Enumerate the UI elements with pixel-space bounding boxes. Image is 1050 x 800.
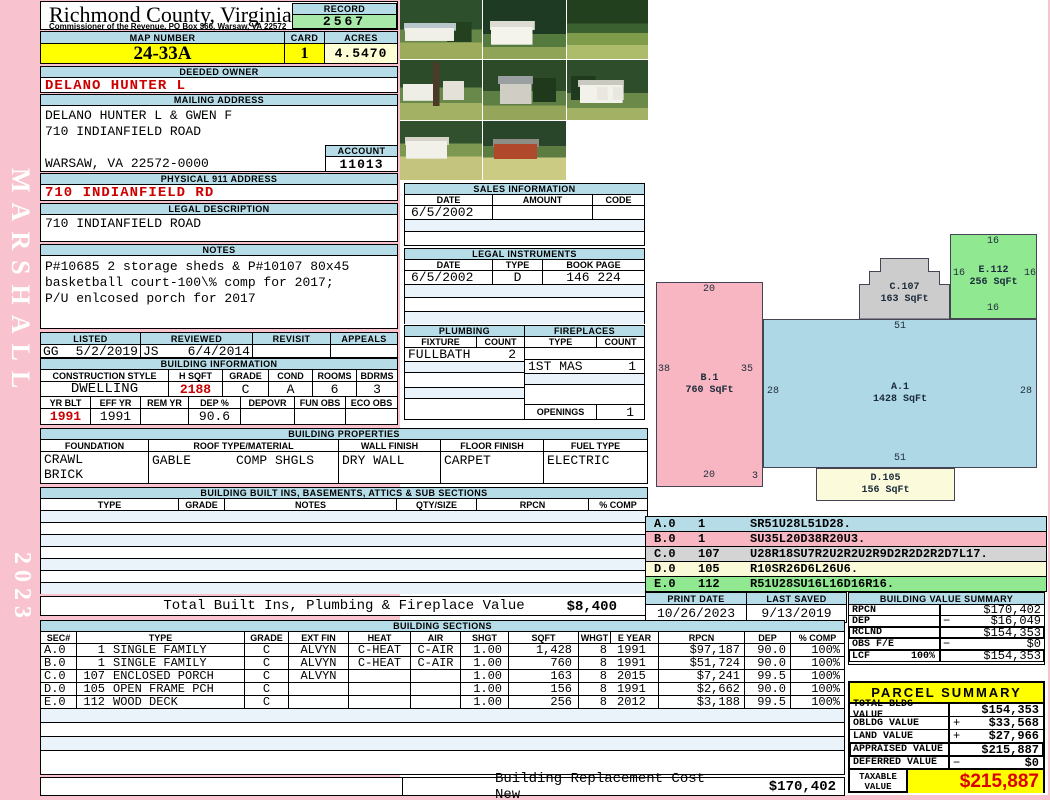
bdrms-value: 3 [357,382,397,396]
sec-num: 112 [77,696,105,708]
bi-comp-label: % COMP [589,499,647,511]
empty-row [525,374,644,385]
listed-date: 5/2/2019 [76,345,138,357]
sec-comp: 100% [791,670,844,682]
sec-whgt: 8 [579,644,611,656]
sec-id: B.0 [41,657,77,669]
legend-trace: SR51U28L51D28. [750,517,851,531]
fireplace-type-value: 1ST MAS [525,360,597,373]
reviewed-by: JS [143,345,159,357]
section-row: A.0 1 SINGLE FAMILY C ALVYN C-HEAT C-AIR… [41,644,844,657]
ps-sign: + [950,717,965,729]
sec-comp: 100% [791,683,844,695]
dep-pct-value: 90.6 [189,409,241,424]
sketch-section-sqft: 256 SqFt [969,277,1017,289]
sketch-section-b1: B.1 760 SqFt [656,282,763,487]
ps-sign: − [950,757,965,768]
legend-num: 105 [698,562,750,576]
photo-garage-in-field[interactable] [400,121,482,180]
legend-sec: B.0 [646,532,698,546]
remyr-value [141,409,189,424]
empty-row [405,298,644,312]
sec-eyear: 2015 [611,670,659,682]
tax-year-watermark: 2023 [8,552,35,624]
legend-num: 1 [698,517,750,531]
hsqft-label: H SQFT [169,370,223,382]
sec-rpcn: $2,662 [659,683,745,695]
grade-label: GRADE [223,370,269,382]
instr-type-label: TYPE [493,260,543,271]
sec-dep: 90.0 [745,644,791,656]
sales-code-value [593,206,644,219]
taxable-label-line: TAXABLE [859,772,897,782]
mailing-address-box: MAILING ADDRESS DELANO HUNTER L & GWEN F… [40,94,398,172]
col-heat: HEAT [349,632,411,644]
review-table: LISTED REVIEWED REVISIT APPEALS GG 5/2/2… [40,332,398,358]
sec-type: OPEN FRAME PCH [105,683,245,695]
print-date-panel: PRINT DATE 10/26/2023 [646,593,747,622]
sketch-section-sqft: 1428 SqFt [873,394,927,406]
section-row: C.0 107 ENCLOSED PORCH C ALVYN 1.00 163 … [41,670,844,683]
effyr-value: 1991 [91,409,141,424]
sec-id: D.0 [41,683,77,695]
notes-line: basketball court-100\% comp for 2017; [45,275,397,291]
building-properties-title: BUILDING PROPERTIES [41,429,647,440]
sketch-section-name: C.107 [859,282,950,294]
sec-extfin: ALVYN [289,644,349,656]
listed-label: LISTED [41,333,141,345]
empty-row [405,285,644,298]
photo-empty-slot [567,121,649,180]
legend-trace: U28R18SU7R2U2R2U2R9D2R2D2R2D7L17. [750,547,988,561]
property-record-card: MARSHALL 2023 Richmond County, Virginia … [0,0,1050,800]
grade-value: C [223,382,269,396]
roof-material-value: COMP SHGLS [236,453,314,468]
sec-id: E.0 [41,696,77,708]
col-type: TYPE [77,632,245,644]
legend-row: E.0 112 R51U28SU16L16D16R16. [646,577,1046,592]
sec-whgt: 8 [579,683,611,695]
depovr-value [241,409,295,424]
mailing-line: DELANO HUNTER L & GWEN F [45,108,397,124]
col-shgt: SHGT [461,632,509,644]
vs-label: OBS F/E [849,639,941,649]
empty-row [405,220,644,232]
sec-sqft: 163 [509,670,579,682]
empty-row [405,232,644,243]
legend-row: C.0 107 U28R18SU7R2U2R2U2R9D2R2D2R2D7L17… [646,547,1046,562]
col-sqft: SQFT [509,632,579,644]
sketch-section-name: D.105 [870,473,900,485]
sec-sqft: 156 [509,683,579,695]
ps-label: DEFERRED VALUE [850,757,950,768]
sec-rpcn: $97,187 [659,644,745,656]
ps-label: LAND VALUE [850,730,950,742]
col-whgt: WHGT [579,632,611,644]
sec-eyear: 1991 [611,644,659,656]
legend-sec: A.0 [646,517,698,531]
effyr-label: EFF YR [91,397,141,409]
mailing-address-label: MAILING ADDRESS [41,95,397,106]
taxable-row: TAXABLE VALUE $215,887 [850,770,1043,793]
col-grade: GRADE [245,632,289,644]
vs-value: $0 [955,639,1044,649]
fireplace-count-value [597,348,644,359]
sec-comp: 100% [791,644,844,656]
sec-type: SINGLE FAMILY [105,657,245,669]
sec-heat [349,670,411,682]
empty-row [405,373,524,388]
sketch-section-name: B.1 [700,373,718,385]
vs-sign: − [941,639,955,649]
empty-row [41,523,647,535]
empty-row [41,751,844,771]
dim-a1-bottom: 51 [894,453,906,464]
fixture-count-value: 2 [477,348,524,361]
footer-rcn-box: Building Replacement Cost New $170,402 [40,777,845,796]
section-row: B.0 1 SINGLE FAMILY C ALVYN C-HEAT C-AIR… [41,657,844,670]
empty-row [41,737,844,751]
cond-value: A [269,382,313,396]
vendor-watermark: MARSHALL [5,168,35,398]
parcel-row: DEFERRED VALUE − $0 [850,757,1043,770]
sketch-section-sqft: 163 SqFt [859,294,950,306]
acres-value: 4.5470 [325,44,397,63]
legal-description-value: 710 INDIANFIELD ROAD [41,215,397,232]
sec-whgt: 8 [579,657,611,669]
wall-finish-value: DRY WALL [339,452,441,483]
built-ins-title: BUILDING BUILT INS, BASEMENTS, ATTICS & … [41,488,647,499]
sec-eyear: 1991 [611,657,659,669]
rooms-label: ROOMS [313,370,357,382]
remyr-label: REM YR [141,397,189,409]
fixture-value: FULLBATH [405,348,477,361]
title-box: Richmond County, Virginia Commissioner o… [40,1,398,30]
building-value-summary: BUILDING VALUE SUMMARY RPCN $170,402 DEP… [848,592,1045,665]
sales-amount-value [493,206,593,219]
sec-grade: C [245,683,289,695]
sec-heat: C-HEAT [349,644,411,656]
sec-air: C-AIR [411,644,461,656]
sec-air [411,696,461,708]
dim-b1-bottom: 20 [703,470,715,481]
notes-line: P#10685 2 storage sheds & P#10107 80x45 [45,259,397,275]
foundation-line: BRICK [44,467,83,482]
photo-garage-two-door[interactable] [567,60,649,119]
sales-amount-label: AMOUNT [493,195,593,206]
sec-num: 107 [77,670,105,682]
bi-grade-label: GRADE [179,499,225,511]
sec-shgt: 1.00 [461,696,509,708]
photo-garage-white[interactable] [483,0,565,59]
ps-label: APPRAISED VALUE [850,743,950,756]
photo-house-side-with-tree[interactable] [400,60,482,119]
foundation-label: FOUNDATION [41,440,149,452]
dim-e112-bottom: 16 [987,303,999,314]
yrblt-label: YR BLT [41,397,91,409]
appeals-value [331,345,397,357]
floor-finish-value: CARPET [441,452,544,483]
deeded-owner-box: DEEDED OWNER DELANO HUNTER L [40,66,398,93]
ps-value: $0 [965,757,1043,768]
dim-a1-right: 28 [1020,386,1032,397]
vs-sign [941,650,955,662]
reviewed-date: 6/4/2014 [188,345,250,357]
fixture-count-label: COUNT [477,337,524,348]
vs-value: $16,049 [955,616,1044,626]
empty-row [405,399,524,419]
sketch-section-d105: D.105 156 SqFt [816,468,955,501]
dim-a1-top: 51 [894,321,906,332]
vs-pct: 100% [911,651,935,662]
notes-box: NOTES P#10685 2 storage sheds & P#10107 … [40,244,398,329]
legend-row: B.0 1 SU35L20D38R20U3. [646,532,1046,547]
empty-row [41,511,647,523]
sec-dep: 99.5 [745,670,791,682]
ps-value: $33,568 [965,717,1043,729]
bi-notes-label: NOTES [225,499,397,511]
rcn-label: Building Replacement Cost New [403,778,716,795]
empty-row [41,571,647,583]
ps-value: $154,353 [965,704,1043,716]
dim-b1-top: 20 [703,284,715,295]
sec-comp: 100% [791,657,844,669]
plumbing-fireplaces-box: PLUMBING FIXTURE COUNT FULLBATH 2 FIREPL… [404,325,645,420]
sec-air [411,670,461,682]
sec-eyear: 1991 [611,683,659,695]
building-properties-box: BUILDING PROPERTIES FOUNDATION ROOF TYPE… [40,428,648,484]
sec-whgt: 8 [579,670,611,682]
legend-sec: C.0 [646,547,698,561]
funobs-label: FUN OBS [295,397,346,409]
legend-trace: R10SR26D6L26U6. [750,562,858,576]
instr-date-label: DATE [405,260,493,271]
empty-row [405,312,644,324]
empty-row [41,723,844,737]
dim-e112-left: 16 [953,268,965,279]
photo-shed-red-in-field[interactable] [483,121,565,180]
card-label: CARD [285,32,325,44]
fireplace-count-label: COUNT [597,337,644,348]
sec-rpcn: $7,241 [659,670,745,682]
sec-dep: 99.5 [745,696,791,708]
col-sec: SEC# [41,632,77,644]
section-row: E.0 112 WOOD DECK C 1.00 256 8 2012 $3,1… [41,696,844,709]
photo-grid [400,0,649,180]
empty-row [41,709,844,723]
sec-rpcn: $3,188 [659,696,745,708]
dim-a1-left: 28 [767,386,779,397]
hsqft-value: 2188 [169,382,223,396]
total-built-ins-label: Total Built Ins, Plumbing & Fireplace Va… [41,597,647,615]
cond-label: COND [269,370,313,382]
dep-pct-label: DEP % [189,397,241,409]
plumbing-panel: PLUMBING FIXTURE COUNT FULLBATH 2 [405,326,525,419]
card-value: 1 [285,44,325,63]
deeded-owner-value: DELANO HUNTER L [41,78,397,93]
roof-label: ROOF TYPE/MATERIAL [149,440,339,452]
rcn-value: $170,402 [716,778,844,795]
legend-trace: SU35L20D38R20U3. [750,532,865,546]
fireplace-type-value [525,348,597,359]
vs-value: $154,353 [955,650,1044,662]
sketch-section-name: A.1 [891,382,909,394]
instr-bookpage-value: 146 224 [543,271,644,284]
sec-heat [349,696,411,708]
print-info-box: PRINT DATE 10/26/2023 LAST SAVED 9/13/20… [645,592,847,623]
building-sketch: B.1 760 SqFt A.1 1428 SqFt C.107 163 SqF… [648,0,1048,515]
sketch-section-a1: A.1 1428 SqFt [763,319,1037,468]
notes-label: NOTES [41,245,397,256]
print-date-label: PRINT DATE [646,593,746,605]
revisit-value [253,345,331,357]
bdrms-label: BDRMS [357,370,397,382]
fixture-label: FIXTURE [405,337,477,348]
total-built-ins-row: Total Built Ins, Plumbing & Fireplace Va… [40,596,648,616]
dim-b1-right: 35 [741,364,753,375]
notes-line: P/U enlcosed porch for 2017 [45,291,397,307]
legend-row: D.0 105 R10SR26D6L26U6. [646,562,1046,577]
empty-row [525,385,644,404]
sec-sqft: 1,428 [509,644,579,656]
ps-sign [950,743,965,756]
map-number-value: 24-33A [41,44,285,63]
account-value: 11013 [326,157,397,171]
fireplaces-title: FIREPLACES [525,326,644,337]
vs-label: RPCN [849,605,941,615]
bi-rpcn-label: RPCN [477,499,589,511]
openings-label: OPENINGS [525,405,597,419]
sec-id: C.0 [41,670,77,682]
col-extfin: EXT FIN [289,632,349,644]
ecoobs-label: ECO OBS [346,397,397,409]
sketch-section-c107: C.107 163 SqFt [859,282,950,306]
sec-heat [349,683,411,695]
taxable-label-line: VALUE [864,782,891,792]
account-label: ACCOUNT [326,146,397,157]
record-value: 2567 [293,15,396,28]
sec-num: 1 [77,644,105,656]
empty-row [41,535,647,547]
building-info-title: BUILDING INFORMATION [41,359,397,370]
appeals-label: APPEALS [331,333,397,345]
sec-air: C-AIR [411,657,461,669]
roof-type-value: GABLE [152,453,191,468]
sec-grade: C [245,696,289,708]
funobs-value [295,409,346,424]
foundation-line: CRAWL [44,452,83,467]
physical-address-label: PHYSICAL 911 ADDRESS [41,174,397,185]
ecoobs-value [346,409,397,424]
construction-style-label: CONSTRUCTION STYLE [41,370,169,382]
photo-shed-gray[interactable] [483,60,565,119]
sketch-section-sqft: 156 SqFt [861,485,909,497]
taxable-value: $215,887 [908,770,1043,793]
sales-info-box: SALES INFORMATION DATE AMOUNT CODE 6/5/2… [404,183,645,246]
sec-sqft: 256 [509,696,579,708]
sec-shgt: 1.00 [461,657,509,669]
col-comp: % COMP [791,632,844,644]
sales-date-value: 6/5/2002 [405,206,493,219]
legend-sec: E.0 [646,577,698,591]
section-row: D.0 105 OPEN FRAME PCH C 1.00 156 8 1991… [41,683,844,696]
sec-dep: 90.0 [745,657,791,669]
fireplace-count-value: 1 [597,360,644,373]
sales-info-title: SALES INFORMATION [405,184,644,195]
sec-whgt: 8 [579,696,611,708]
sec-comp: 100% [791,696,844,708]
sec-dep: 90.0 [745,683,791,695]
col-eyear: E YEAR [611,632,659,644]
legal-instruments-title: LEGAL INSTRUMENTS [405,249,644,260]
fuel-type-label: FUEL TYPE [544,440,647,452]
fireplace-type-label: TYPE [525,337,597,348]
dim-e112-right: 16 [1024,268,1036,279]
vs-label: RCLND [849,627,941,638]
sec-extfin [289,683,349,695]
dim-b1-corner: 3 [752,471,758,482]
ps-value: $215,887 [965,743,1043,756]
photo-yard-trees[interactable] [567,0,649,59]
sec-grade: C [245,657,289,669]
instr-type-value: D [493,271,543,284]
sec-air [411,683,461,695]
ps-label: TOTAL BLDG VALUE [850,704,950,716]
total-built-ins-value: $8,400 [567,599,617,615]
sec-shgt: 1.00 [461,683,509,695]
building-info-box: BUILDING INFORMATION CONSTRUCTION STYLE … [40,358,398,425]
building-sections-title: BUILDING SECTIONS [41,621,844,632]
instr-bookpage-label: BOOK PAGE [543,260,644,271]
yrblt-value: 1991 [41,409,91,424]
sec-sqft: 760 [509,657,579,669]
sec-extfin: ALVYN [289,657,349,669]
rooms-value: 6 [313,382,357,396]
sec-id: A.0 [41,644,77,656]
dim-e112-top: 16 [987,236,999,247]
legend-sec: D.0 [646,562,698,576]
legend-row: A.0 1 SR51U28L51D28. [646,517,1046,532]
value-summary-row: LCF 100% $154,353 [849,650,1044,662]
last-saved-panel: LAST SAVED 9/13/2019 [747,593,846,622]
built-ins-box: BUILDING BUILT INS, BASEMENTS, ATTICS & … [40,487,648,594]
legal-description-label: LEGAL DESCRIPTION [41,204,397,215]
map-number-box: MAP NUMBER CARD ACRES 24-33A 1 4.5470 [40,31,398,64]
sec-type: WOOD DECK [105,696,245,708]
col-dep: DEP [745,632,791,644]
bi-type-label: TYPE [41,499,179,511]
sec-grade: C [245,644,289,656]
vs-label: LCF [852,651,870,662]
ps-sign: + [950,730,965,742]
plumbing-title: PLUMBING [405,326,524,337]
sec-num: 105 [77,683,105,695]
building-sections-table: BUILDING SECTIONS SEC# TYPE GRADE EXT FI… [40,620,845,775]
empty-row [41,583,647,594]
acres-label: ACRES [325,32,397,44]
photo-house-front[interactable] [400,0,482,59]
ps-value: $27,966 [965,730,1043,742]
empty-row [405,388,524,399]
legend-trace: R51U28SU16L16D16R16. [750,577,894,591]
record-box: RECORD 2567 [292,3,397,29]
vs-sign: − [941,616,955,626]
physical-address-value: 710 INDIANFIELD RD [41,185,397,201]
revisit-label: REVISIT [253,333,331,345]
depovr-label: DEPOVR [241,397,295,409]
listed-by: GG [43,345,59,357]
sec-type: ENCLOSED PORCH [105,670,245,682]
